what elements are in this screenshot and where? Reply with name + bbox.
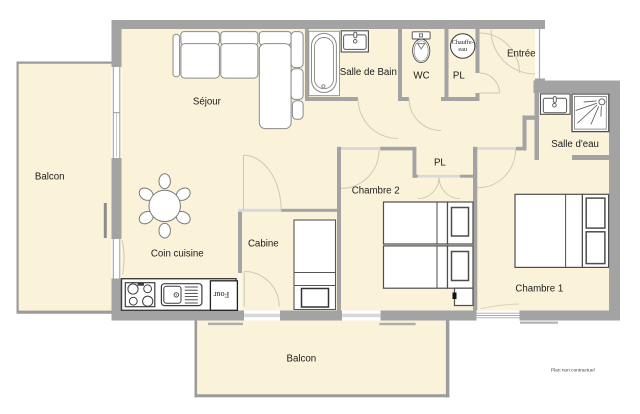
svg-text:Entrée: Entrée (507, 49, 536, 60)
svg-text:Four: Four (213, 290, 229, 299)
svg-text:WC: WC (413, 71, 429, 82)
svg-text:Séjour: Séjour (193, 97, 222, 108)
svg-text:Coin cuisine: Coin cuisine (151, 249, 204, 260)
svg-text:Balcon: Balcon (286, 354, 316, 365)
svg-text:Balcon: Balcon (35, 171, 65, 182)
svg-text:Chauffe-: Chauffe- (452, 39, 474, 46)
svg-text:PL: PL (434, 158, 446, 169)
svg-text:Plan non contractuel: Plan non contractuel (551, 368, 595, 374)
svg-text:eau: eau (458, 46, 467, 53)
svg-text:Cabine: Cabine (248, 238, 279, 249)
svg-text:PL: PL (453, 71, 465, 82)
svg-text:Salle d'eau: Salle d'eau (551, 139, 599, 150)
svg-text:Chambre 2: Chambre 2 (352, 186, 400, 197)
svg-text:Salle de Bain: Salle de Bain (340, 67, 397, 78)
svg-text:Chambre 1: Chambre 1 (515, 283, 563, 294)
